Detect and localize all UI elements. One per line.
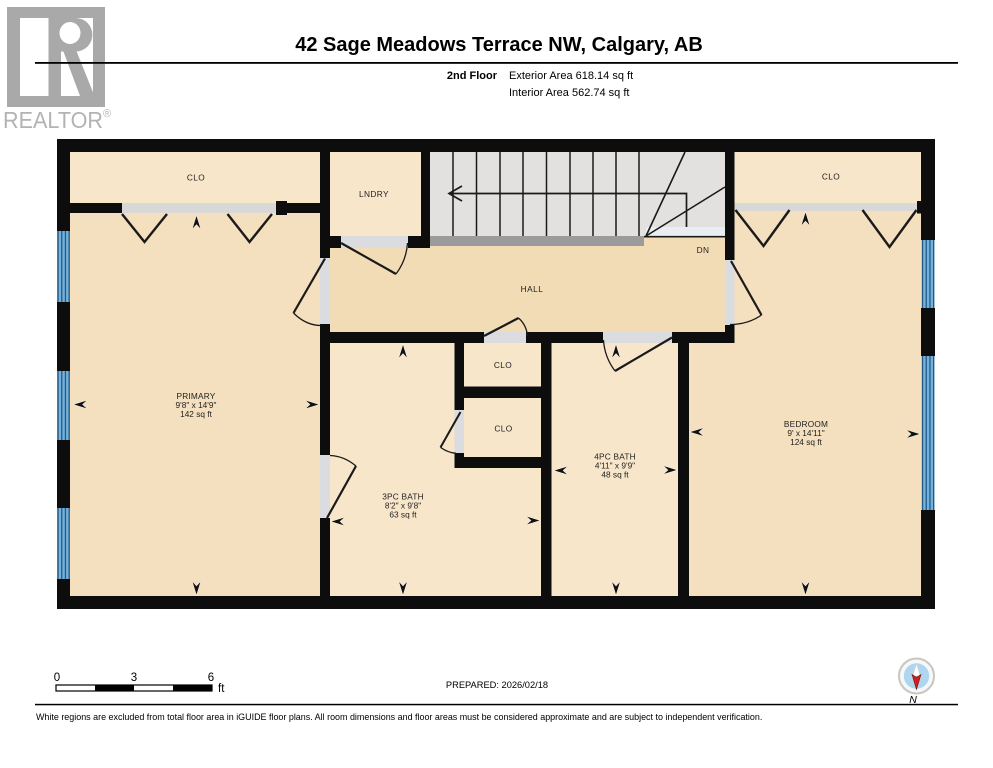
svg-text:White regions are excluded fro: White regions are excluded from total fl…: [36, 712, 762, 722]
svg-text:CLO: CLO: [494, 360, 512, 370]
svg-text:63 sq ft: 63 sq ft: [389, 509, 417, 519]
svg-text:DN: DN: [697, 245, 710, 255]
svg-text:®: ®: [103, 108, 111, 120]
svg-text:124 sq ft: 124 sq ft: [790, 437, 823, 447]
svg-text:142 sq ft: 142 sq ft: [180, 409, 213, 419]
svg-text:6: 6: [208, 672, 214, 684]
svg-text:PREPARED: 2026/02/18: PREPARED: 2026/02/18: [446, 680, 548, 690]
svg-text:REALTOR: REALTOR: [3, 107, 103, 133]
svg-text:CLO: CLO: [822, 172, 840, 182]
svg-text:42 Sage Meadows Terrace NW, Ca: 42 Sage Meadows Terrace NW, Calgary, AB: [295, 34, 703, 56]
svg-text:Interior Area 562.74 sq ft: Interior Area 562.74 sq ft: [509, 87, 629, 99]
svg-text:HALL: HALL: [521, 284, 544, 294]
svg-text:0: 0: [54, 672, 60, 684]
svg-text:3: 3: [131, 672, 137, 684]
svg-text:LNDRY: LNDRY: [359, 189, 389, 199]
svg-text:ft: ft: [218, 683, 225, 695]
svg-text:2nd Floor: 2nd Floor: [447, 70, 498, 82]
svg-text:CLO: CLO: [187, 173, 205, 183]
svg-text:Exterior Area 618.14 sq ft: Exterior Area 618.14 sq ft: [509, 70, 633, 82]
svg-text:CLO: CLO: [494, 424, 512, 434]
svg-text:48 sq ft: 48 sq ft: [601, 470, 629, 480]
